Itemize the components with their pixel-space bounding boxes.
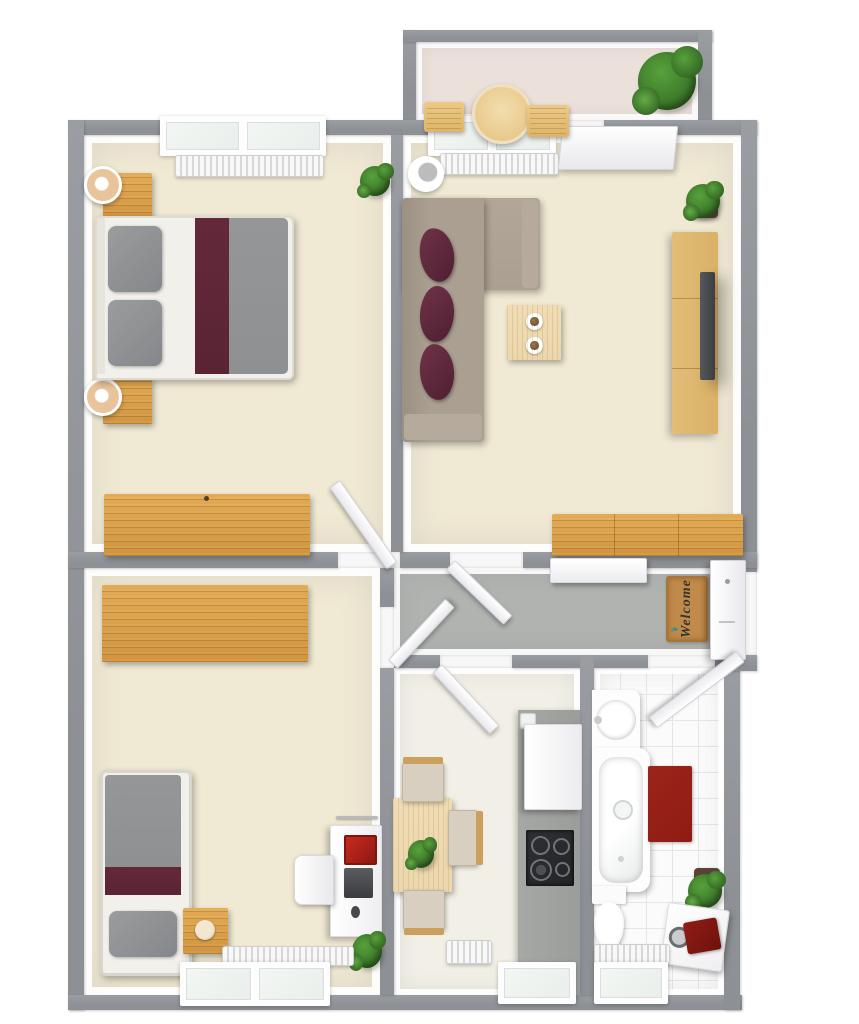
cooktop bbox=[526, 830, 574, 886]
burner bbox=[530, 859, 552, 881]
balcony-wall-right bbox=[698, 30, 712, 122]
mouse bbox=[351, 906, 360, 918]
bathtub-basin bbox=[599, 757, 643, 883]
bathroom-plant bbox=[688, 874, 722, 908]
laptop bbox=[344, 868, 373, 898]
faucet bbox=[594, 716, 602, 724]
washbasin-bowl bbox=[596, 700, 636, 740]
floor-lamp bbox=[408, 156, 444, 192]
living-room-plant bbox=[686, 184, 720, 218]
cup-1 bbox=[526, 313, 543, 330]
desk-lamp bbox=[336, 816, 378, 819]
burner bbox=[555, 862, 570, 877]
toilet-bowl bbox=[594, 902, 624, 950]
bedroom-main-wardrobe bbox=[104, 494, 310, 556]
kitchen-radiator bbox=[446, 940, 492, 964]
red-towel bbox=[683, 917, 722, 954]
bed-runner-maroon bbox=[195, 218, 229, 374]
bathtub-drain bbox=[618, 856, 624, 862]
window-pane bbox=[164, 120, 241, 152]
bath-rug bbox=[648, 766, 692, 842]
single-bed bbox=[100, 770, 192, 976]
sideboard-seam bbox=[678, 514, 679, 556]
chair-backrest bbox=[403, 757, 443, 764]
balcony-table bbox=[472, 84, 532, 144]
balcony-chair-left bbox=[424, 102, 464, 132]
bedroom-small-window bbox=[180, 962, 330, 1006]
single-bed-pillow bbox=[109, 911, 177, 957]
bed-headboard bbox=[97, 218, 105, 374]
mid-wall-center bbox=[400, 552, 450, 568]
table-lamp-bottom bbox=[84, 378, 122, 416]
bathroom-radiator bbox=[594, 944, 670, 964]
bedroom-main-window bbox=[160, 116, 326, 156]
kitchen-window bbox=[498, 962, 576, 1004]
threshold-kitchen bbox=[440, 655, 512, 668]
wall-kitchen-top-right bbox=[512, 655, 580, 668]
bathtub bbox=[592, 748, 650, 892]
chair-backrest bbox=[404, 928, 444, 935]
bed-blanket-gray bbox=[229, 218, 288, 374]
floor-plan: Welcome ❧ bbox=[0, 0, 859, 1024]
balcony-chair-right bbox=[527, 105, 569, 137]
wardrobe-handle bbox=[204, 496, 209, 501]
dining-chair-top bbox=[402, 762, 444, 802]
bathtub-faucet bbox=[613, 800, 633, 820]
balcony-door-open bbox=[558, 126, 679, 170]
dining-table-plant bbox=[408, 840, 434, 868]
bed-pillow-top bbox=[108, 226, 162, 292]
bed-pillow-bottom bbox=[108, 300, 162, 366]
washing-machine bbox=[660, 902, 730, 972]
entrance-door bbox=[710, 560, 746, 660]
sideboard bbox=[552, 514, 743, 556]
bedroom-main-plant bbox=[360, 166, 390, 196]
kitchen-tall-cabinet bbox=[524, 724, 582, 810]
balcony-wall-left bbox=[403, 30, 416, 122]
chair-backrest bbox=[476, 811, 483, 865]
dining-chair-bottom bbox=[403, 890, 445, 930]
welcome-mat: Welcome ❧ bbox=[666, 576, 708, 642]
burner bbox=[553, 838, 570, 855]
sofa-armrest-bottom bbox=[404, 414, 482, 440]
outer-wall-right-upper bbox=[741, 120, 757, 572]
entrance-door-handle bbox=[719, 621, 735, 623]
window-pane bbox=[257, 966, 326, 1002]
toilet bbox=[592, 886, 626, 952]
sideboard-seam bbox=[614, 514, 615, 556]
window-pane bbox=[245, 120, 322, 152]
single-bed-blanket bbox=[105, 775, 181, 867]
double-bed bbox=[95, 216, 294, 380]
tv bbox=[700, 272, 715, 380]
table-lamp-top bbox=[84, 166, 122, 204]
entrance-door-keyhole bbox=[725, 579, 730, 584]
bedroom-main-radiator bbox=[175, 155, 324, 177]
alarm-clock bbox=[195, 920, 215, 940]
window-pane bbox=[184, 966, 253, 1002]
dining-chair-right bbox=[448, 810, 478, 866]
wall-bath-top bbox=[594, 655, 648, 668]
wall-bedroom-small-upper bbox=[380, 568, 394, 607]
bedroom-small-wardrobe bbox=[102, 585, 308, 662]
desk bbox=[330, 825, 382, 937]
balcony-plant bbox=[638, 52, 696, 110]
window-pane bbox=[598, 966, 664, 1000]
coffee-table bbox=[507, 305, 561, 360]
bathroom-window bbox=[594, 962, 668, 1004]
single-bed-runner bbox=[105, 867, 181, 895]
shoe-cabinet bbox=[550, 558, 647, 583]
cup-2 bbox=[526, 337, 543, 354]
living-room-radiator bbox=[440, 153, 559, 175]
desk-plant bbox=[352, 934, 382, 968]
balcony-wall-top bbox=[403, 30, 712, 42]
burner bbox=[531, 836, 550, 855]
sofa-armrest-right bbox=[522, 200, 538, 288]
threshold-bathroom bbox=[648, 655, 715, 668]
desk-chair bbox=[294, 855, 334, 905]
outer-wall-right-lower bbox=[724, 658, 740, 1010]
red-notebook bbox=[344, 835, 377, 865]
window-pane bbox=[502, 966, 572, 1000]
